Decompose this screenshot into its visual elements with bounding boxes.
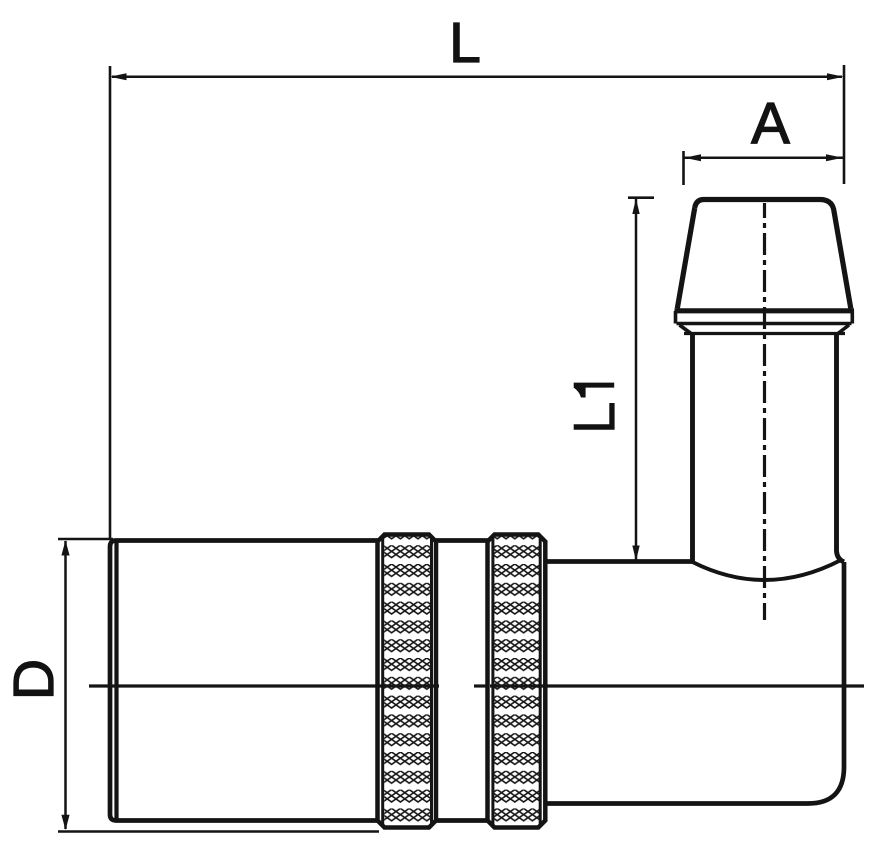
svg-text:A: A	[751, 92, 790, 157]
svg-text:D: D	[2, 659, 66, 700]
svg-text:L: L	[449, 11, 481, 75]
